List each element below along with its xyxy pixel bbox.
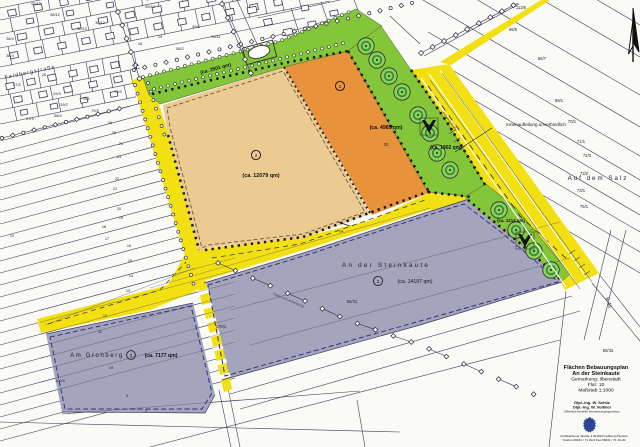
svg-text:Flur: 10: Flur: 10 — [588, 382, 605, 388]
svg-text:59/11: 59/11 — [211, 35, 220, 39]
svg-text:75/1: 75/1 — [580, 204, 589, 209]
svg-text:13: 13 — [126, 289, 130, 293]
svg-text:(ca. 4985 qm): (ca. 4985 qm) — [370, 125, 403, 131]
svg-text:79/1: 79/1 — [82, 97, 89, 101]
svg-text:56/13: 56/13 — [31, 2, 41, 6]
svg-text:21: 21 — [113, 187, 117, 191]
svg-text:15: 15 — [128, 259, 132, 263]
svg-text:59/10: 59/10 — [145, 5, 155, 9]
svg-text:27/4: 27/4 — [26, 117, 33, 121]
svg-text:19: 19 — [119, 216, 123, 220]
svg-text:18: 18 — [138, 42, 142, 46]
svg-text:4: 4 — [145, 409, 147, 413]
svg-text:(ca. 12079 qm): (ca. 12079 qm) — [242, 173, 279, 179]
svg-text:25: 25 — [112, 131, 116, 135]
svg-text:72/3: 72/3 — [583, 153, 592, 158]
svg-text:11: 11 — [98, 330, 102, 334]
svg-text:55/33: 55/33 — [603, 348, 614, 353]
svg-text:29/2: 29/2 — [60, 103, 67, 107]
svg-text:(ca. 14197 qm): (ca. 14197 qm) — [398, 279, 433, 285]
svg-text:17: 17 — [105, 237, 109, 241]
svg-text:30/12: 30/12 — [95, 21, 105, 25]
svg-text:2: 2 — [255, 153, 258, 158]
svg-text:70/1: 70/1 — [568, 119, 577, 124]
svg-text:73/1: 73/1 — [577, 188, 586, 193]
svg-text:10: 10 — [10, 234, 14, 238]
svg-text:100/4: 100/4 — [55, 379, 65, 383]
svg-text:58/2: 58/2 — [176, 47, 183, 51]
svg-text:71/1: 71/1 — [577, 139, 586, 144]
svg-text:9: 9 — [126, 394, 128, 398]
svg-text:1 a: 1 a — [133, 63, 139, 67]
svg-text:59/2: 59/2 — [192, 25, 199, 29]
svg-text:Am Grohberg: Am Grohberg — [70, 353, 124, 359]
svg-text:3: 3 — [377, 279, 380, 284]
svg-text:Innenaufteilung unverbindlich: Innenaufteilung unverbindlich — [506, 122, 566, 127]
svg-text:55/31: 55/31 — [347, 299, 358, 304]
svg-text:27/2: 27/2 — [13, 83, 20, 87]
svg-text:(ca. 1902 qm): (ca. 1902 qm) — [430, 145, 462, 151]
svg-text:An der Steinkaute: An der Steinkaute — [342, 262, 430, 269]
svg-text:Gemarkung: Ilbenstadt: Gemarkung: Ilbenstadt — [571, 377, 621, 383]
svg-text:26: 26 — [108, 121, 112, 125]
svg-text:Auf dem Salz: Auf dem Salz — [568, 175, 629, 182]
svg-text:79/3: 79/3 — [114, 90, 121, 94]
svg-text:79/2: 79/2 — [91, 109, 98, 113]
svg-text:29/3: 29/3 — [53, 92, 60, 96]
svg-text:19: 19 — [109, 366, 113, 370]
svg-text:(ca. 7177 qm): (ca. 7177 qm) — [145, 353, 178, 359]
svg-text:22: 22 — [115, 177, 119, 181]
svg-text:30/13: 30/13 — [77, 27, 87, 31]
svg-text:Telefon 06031 / 71 40-0: Telefon 06031 / 71 40-0 Fax 06031 / 71 4… — [563, 438, 626, 442]
svg-text:(ca. 1214 qm): (ca. 1214 qm) — [497, 218, 525, 223]
svg-text:16: 16 — [127, 244, 131, 248]
svg-text:113/5: 113/5 — [516, 5, 527, 10]
svg-text:24: 24 — [119, 142, 123, 146]
svg-text:An der Steinkaute: An der Steinkaute — [572, 371, 620, 377]
svg-text:20: 20 — [117, 207, 121, 211]
svg-text:Öffentlich bestellte Vermessun: Öffentlich bestellte Vermessungsingenieu… — [564, 410, 620, 414]
svg-text:69/1: 69/1 — [555, 98, 564, 103]
svg-text:Maßstab 1:1000: Maßstab 1:1000 — [578, 388, 614, 394]
svg-text:18: 18 — [102, 225, 106, 229]
svg-text:58/4: 58/4 — [54, 114, 61, 118]
svg-text:36/3: 36/3 — [6, 54, 13, 58]
svg-text:56/12: 56/12 — [50, 13, 60, 17]
svg-text:1: 1 — [339, 84, 342, 89]
svg-text:66/5: 66/5 — [509, 27, 518, 32]
svg-text:12: 12 — [103, 314, 107, 318]
svg-text:19: 19 — [158, 35, 162, 39]
svg-text:66/7: 66/7 — [538, 56, 547, 61]
svg-text:36/4: 36/4 — [6, 37, 13, 41]
svg-text:175/1: 175/1 — [216, 324, 227, 329]
svg-text:14: 14 — [129, 274, 133, 278]
svg-text:St: St — [384, 142, 389, 147]
svg-text:23: 23 — [117, 155, 121, 159]
svg-text:26: 26 — [42, 73, 46, 77]
